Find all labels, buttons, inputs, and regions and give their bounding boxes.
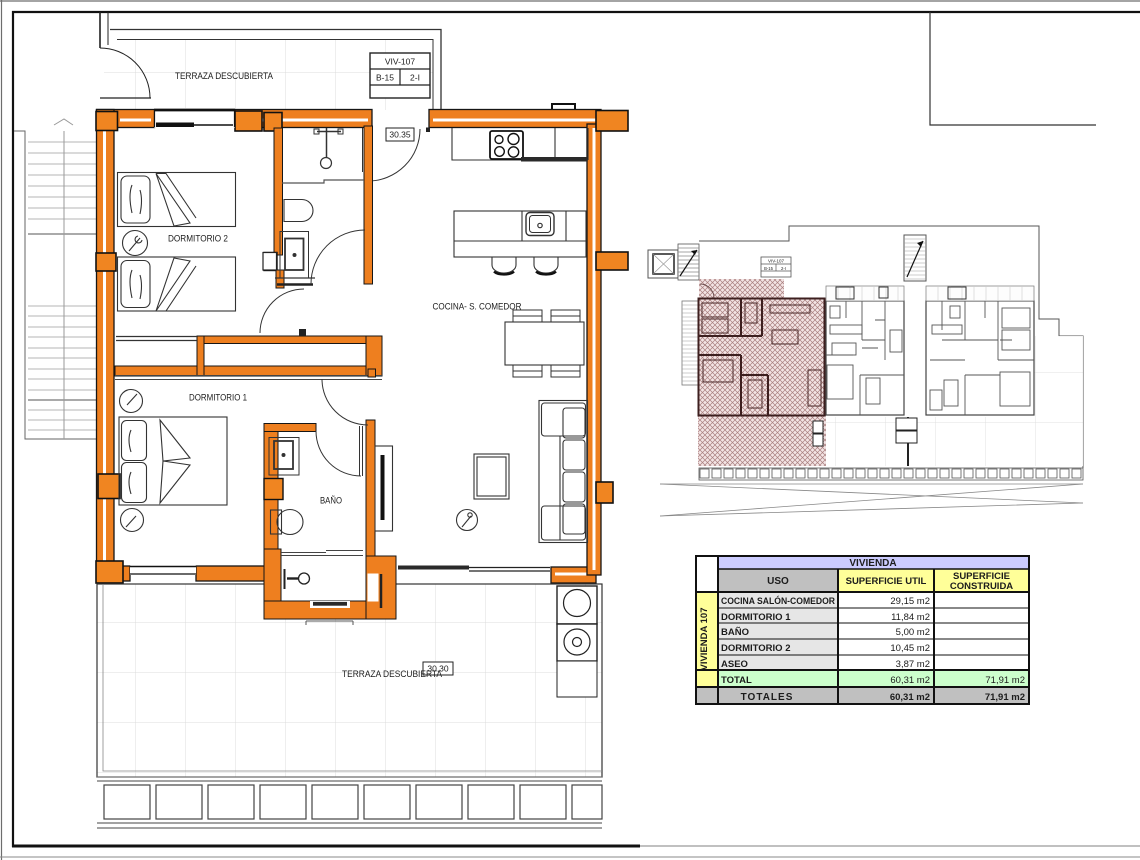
svg-text:5,00 m2: 5,00 m2 — [896, 627, 930, 638]
svg-text:TOTAL: TOTAL — [721, 675, 752, 686]
svg-text:29,15 m2: 29,15 m2 — [890, 596, 930, 607]
svg-text:TERRAZA DESCUBIERTA: TERRAZA DESCUBIERTA — [342, 669, 443, 680]
svg-text:DORMITORIO 2: DORMITORIO 2 — [721, 643, 791, 654]
svg-text:60,31 m2: 60,31 m2 — [890, 675, 930, 686]
svg-text:VIVIENDA 107: VIVIENDA 107 — [699, 607, 710, 670]
svg-text:71,91 m2: 71,91 m2 — [985, 692, 1025, 703]
svg-text:30.35: 30.35 — [389, 130, 411, 140]
svg-text:2-I: 2-I — [410, 73, 420, 83]
svg-text:VIV-107: VIV-107 — [768, 259, 785, 264]
svg-text:COCINA- S. COMEDOR: COCINA- S. COMEDOR — [433, 302, 522, 312]
svg-text:11,84 m2: 11,84 m2 — [891, 612, 930, 623]
svg-text:2-I: 2-I — [781, 266, 786, 271]
svg-text:SUPERFICIE UTIL: SUPERFICIE UTIL — [846, 576, 927, 587]
svg-text:3,87 m2: 3,87 m2 — [896, 659, 930, 670]
svg-text:10,45 m2: 10,45 m2 — [890, 643, 930, 654]
svg-text:71,91 m2: 71,91 m2 — [985, 675, 1025, 686]
svg-text:B-15: B-15 — [764, 266, 774, 271]
svg-text:VIVIENDA: VIVIENDA — [849, 558, 896, 569]
svg-text:VIV-107: VIV-107 — [385, 57, 416, 67]
svg-text:CONSTRUIDA: CONSTRUIDA — [950, 581, 1013, 592]
svg-text:B-15: B-15 — [376, 73, 394, 83]
svg-text:60,31 m2: 60,31 m2 — [890, 692, 930, 703]
svg-text:TOTALES: TOTALES — [741, 692, 794, 703]
svg-text:DORMITORIO 2: DORMITORIO 2 — [168, 234, 228, 244]
svg-text:DORMITORIO 1: DORMITORIO 1 — [189, 393, 247, 403]
svg-text:ASEO: ASEO — [721, 659, 748, 670]
svg-text:DORMITORIO 1: DORMITORIO 1 — [721, 612, 791, 623]
svg-text:BAÑO: BAÑO — [721, 627, 749, 638]
svg-text:TERRAZA DESCUBIERTA: TERRAZA DESCUBIERTA — [175, 71, 274, 82]
svg-text:BAÑO: BAÑO — [320, 496, 342, 506]
svg-text:COCINA SALÓN-COMEDOR: COCINA SALÓN-COMEDOR — [721, 595, 835, 607]
svg-text:USO: USO — [767, 576, 789, 587]
